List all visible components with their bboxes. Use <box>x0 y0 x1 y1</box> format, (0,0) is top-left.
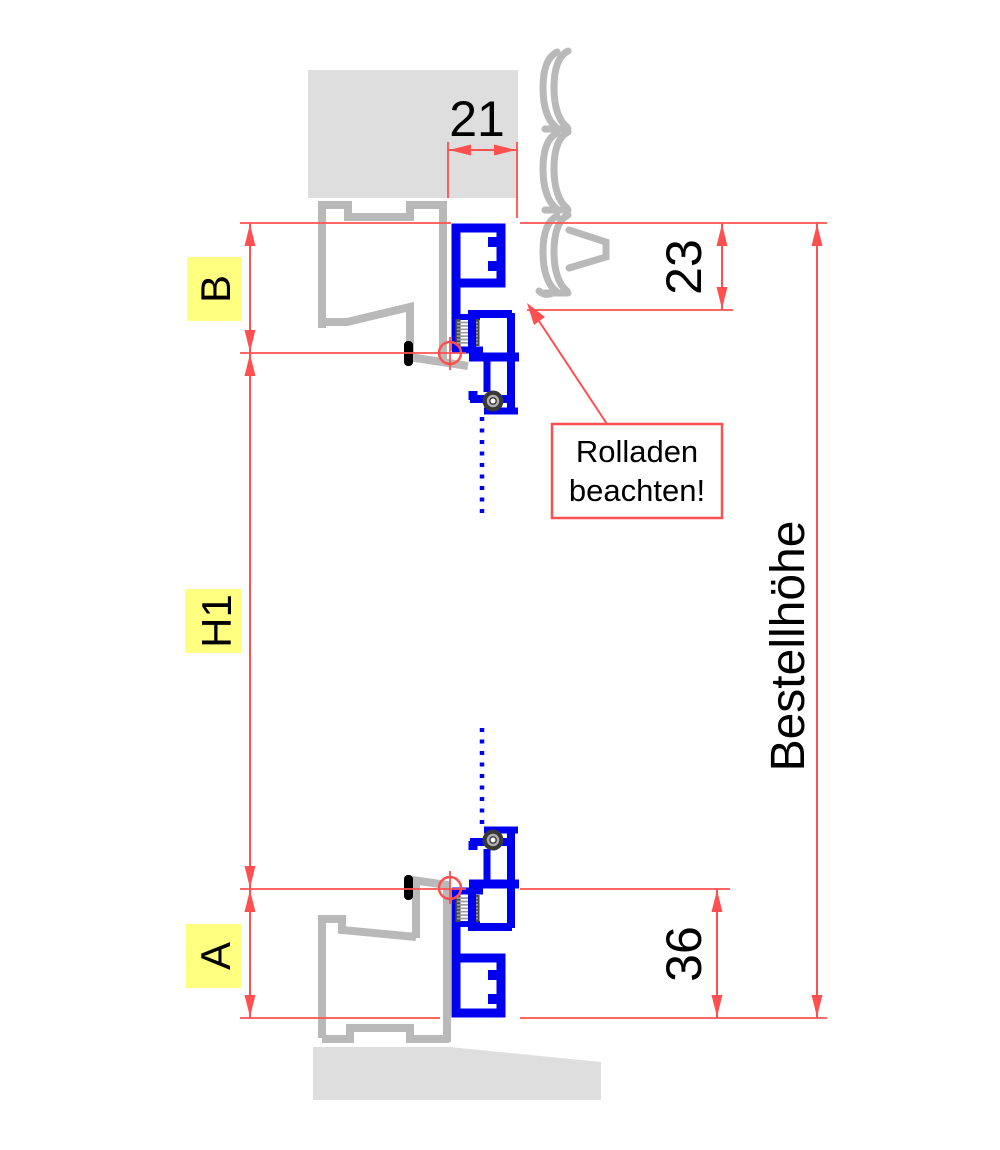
dim-value-36: 36 <box>656 926 712 982</box>
leader-line <box>533 312 607 424</box>
technical-drawing-canvas: 21 23 36 Bestellhöhe B H1 A Rolladen bea… <box>0 0 1000 1150</box>
dim-value-23: 23 <box>656 239 712 295</box>
measure-label-a-text: A <box>192 942 239 970</box>
roller-shutter <box>539 51 606 294</box>
annotation-line2: beachten! <box>569 473 705 508</box>
shutter-end-slat-stopper <box>569 230 606 268</box>
shutter-slat <box>543 51 568 129</box>
measure-label-h1-text: H1 <box>193 594 240 648</box>
annotation-callout: Rolladen beachten! <box>552 424 722 518</box>
order-height-label: Bestellhöhe <box>762 521 815 772</box>
measure-label-a: A <box>186 924 241 988</box>
guide-roller <box>483 391 504 412</box>
shutter-slat <box>543 132 568 210</box>
screen-frame-box <box>456 228 501 283</box>
frame-inner-tab <box>488 261 502 271</box>
shutter-slat <box>543 215 568 293</box>
drawing-svg: 21 23 36 Bestellhöhe B H1 A Rolladen bea… <box>0 0 1000 1150</box>
annotation-line1: Rolladen <box>576 434 698 469</box>
measure-label-b-text: B <box>192 275 239 303</box>
measure-label-h1: H1 <box>185 589 242 653</box>
frame-inner-tab <box>488 237 502 247</box>
dimension-lines <box>240 142 827 1018</box>
leader-arrow <box>527 303 545 325</box>
shutter-end-slat-curl <box>539 291 556 294</box>
measure-label-b: B <box>187 257 242 321</box>
window-sill <box>313 1047 601 1100</box>
fly-screen-profile-bottom <box>404 725 519 1013</box>
fly-screen-profile-top <box>404 228 519 516</box>
dim-value-21: 21 <box>449 91 505 147</box>
